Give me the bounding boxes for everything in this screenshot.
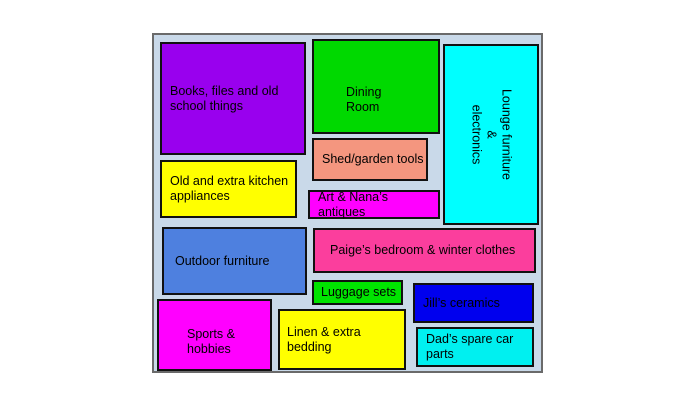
storage-layout-map: Books, files and old school thingsDining…	[152, 33, 543, 373]
room-label-dining: Dining Room	[346, 85, 381, 115]
room-lounge: Lounge furniture & electronics	[443, 44, 539, 225]
room-label-lounge: Lounge furniture & electronics	[469, 89, 514, 181]
room-label-kitchen: Old and extra kitchen appliances	[170, 174, 288, 204]
room-outdoor: Outdoor furniture	[162, 227, 307, 295]
room-dad: Dad’s spare car parts	[416, 327, 534, 367]
room-linen: Linen & extra bedding	[278, 309, 406, 370]
room-sports: Sports & hobbies	[157, 299, 272, 371]
room-label-luggage: Luggage sets	[321, 285, 396, 300]
room-dining: Dining Room	[312, 39, 440, 134]
room-label-outdoor: Outdoor furniture	[175, 254, 270, 269]
room-label-sports: Sports & hobbies	[187, 327, 235, 357]
room-jill: Jill’s ceramics	[413, 283, 534, 323]
room-label-dad: Dad’s spare car parts	[426, 332, 513, 362]
room-label-jill: Jill’s ceramics	[423, 296, 500, 311]
canvas: Books, files and old school thingsDining…	[0, 0, 700, 410]
room-label-shed: Shed/garden tools	[322, 152, 423, 167]
room-label-paige: Paige’s bedroom & winter clothes	[330, 243, 515, 258]
room-books: Books, files and old school things	[160, 42, 306, 155]
room-kitchen: Old and extra kitchen appliances	[160, 160, 297, 218]
room-paige: Paige’s bedroom & winter clothes	[313, 228, 536, 273]
room-label-books: Books, files and old school things	[170, 84, 278, 114]
room-label-art: Art & Nana’s antiques	[318, 190, 388, 220]
room-shed: Shed/garden tools	[312, 138, 428, 181]
room-label-linen: Linen & extra bedding	[287, 325, 361, 355]
room-luggage: Luggage sets	[312, 280, 403, 305]
room-art: Art & Nana’s antiques	[308, 190, 440, 219]
